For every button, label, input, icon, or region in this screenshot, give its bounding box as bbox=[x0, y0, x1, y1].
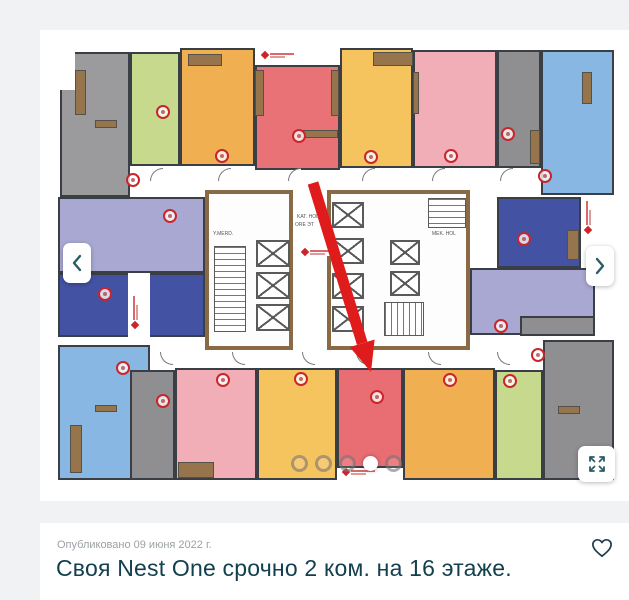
elevator-shaft bbox=[256, 304, 290, 331]
unit-green-bottom bbox=[495, 370, 543, 480]
wall-segment bbox=[413, 72, 419, 114]
unit-number-marker bbox=[163, 209, 177, 223]
unit-number-marker bbox=[494, 319, 508, 333]
wall-segment bbox=[95, 405, 117, 412]
door-arc bbox=[356, 352, 369, 365]
wall-segment bbox=[178, 462, 214, 478]
unit-number-marker bbox=[370, 390, 384, 404]
wall-segment bbox=[530, 130, 540, 164]
unit-number-marker bbox=[501, 127, 515, 141]
unit-number-marker bbox=[156, 394, 170, 408]
gallery-dot[interactable] bbox=[339, 455, 356, 472]
logo-text-lines bbox=[310, 250, 334, 255]
door-arc bbox=[302, 352, 315, 365]
gallery-dots bbox=[291, 455, 402, 472]
logo-diamond-icon bbox=[301, 248, 309, 256]
logo-diamond-icon bbox=[131, 321, 139, 329]
unit-number-marker bbox=[126, 173, 140, 187]
floorplan-image-card: KAT. HOLORE ЭТMEK. HOLY.MERD. bbox=[40, 30, 629, 501]
door-arc bbox=[497, 352, 510, 365]
chevron-right-icon bbox=[594, 257, 606, 275]
elevator-shaft bbox=[390, 271, 420, 296]
gallery-dot[interactable] bbox=[291, 455, 308, 472]
gallery-dot[interactable] bbox=[385, 455, 402, 472]
unit-number-marker bbox=[364, 150, 378, 164]
gallery-next-button[interactable] bbox=[586, 246, 614, 286]
door-arc bbox=[428, 352, 441, 365]
listing-title: Своя Nest One срочно 2 ком. на 16 этаже. bbox=[56, 555, 512, 582]
floorplan-drawing: KAT. HOLORE ЭТMEK. HOLY.MERD. bbox=[40, 30, 629, 501]
wall-segment bbox=[373, 52, 413, 66]
staircase bbox=[214, 246, 246, 332]
gallery-dot-active[interactable] bbox=[363, 456, 378, 471]
favorite-button[interactable] bbox=[589, 536, 615, 563]
plan-label: ORE ЭТ bbox=[295, 223, 314, 229]
elevator-shaft bbox=[332, 238, 364, 264]
unit-number-marker bbox=[294, 372, 308, 386]
unit-number-marker bbox=[517, 232, 531, 246]
plan-label: MEK. HOL bbox=[432, 232, 456, 238]
elevator-shaft bbox=[256, 240, 290, 267]
wall-segment bbox=[582, 72, 592, 104]
unit-number-marker bbox=[444, 149, 458, 163]
wall-segment bbox=[255, 70, 264, 116]
listing-info-card: Опубликовано 09 июня 2022 г. Своя Nest O… bbox=[40, 523, 629, 600]
staircase bbox=[428, 198, 466, 228]
unit-number-marker bbox=[538, 169, 552, 183]
unit-yellow-top bbox=[340, 48, 413, 168]
logo-text-lines bbox=[270, 53, 294, 58]
door-arc bbox=[150, 168, 163, 181]
elevator-shaft bbox=[332, 202, 364, 228]
plan-label: KAT. HOL bbox=[297, 215, 319, 221]
staircase bbox=[384, 302, 424, 336]
unit-number-marker bbox=[215, 149, 229, 163]
wall-segment bbox=[70, 425, 82, 473]
elevator-shaft bbox=[332, 273, 364, 299]
unit-gray-step-right bbox=[520, 316, 595, 336]
gallery-prev-button[interactable] bbox=[63, 243, 91, 283]
wall-segment bbox=[188, 54, 222, 66]
corridor bbox=[58, 48, 75, 90]
unit-number-marker bbox=[443, 373, 457, 387]
unit-green-top bbox=[130, 52, 180, 166]
unit-number-marker bbox=[98, 287, 112, 301]
door-arc bbox=[362, 168, 375, 181]
unit-number-marker bbox=[116, 361, 130, 375]
elevator-shaft bbox=[256, 272, 290, 299]
gallery-dot[interactable] bbox=[315, 455, 332, 472]
logo-text-lines bbox=[586, 201, 591, 225]
elevator-shaft bbox=[332, 306, 364, 332]
elevator-shaft bbox=[390, 240, 420, 265]
fullscreen-button[interactable] bbox=[578, 446, 615, 482]
wall-segment bbox=[331, 70, 339, 116]
wall-segment bbox=[75, 70, 86, 115]
door-arc bbox=[218, 168, 231, 181]
wall-segment bbox=[95, 120, 117, 128]
unit-number-marker bbox=[156, 105, 170, 119]
unit-gray-bottom-left bbox=[130, 370, 175, 480]
published-date: Опубликовано 09 июня 2022 г. bbox=[57, 539, 212, 551]
heart-icon bbox=[591, 538, 613, 558]
door-arc bbox=[500, 168, 513, 181]
unit-number-marker bbox=[531, 348, 545, 362]
unit-number-marker bbox=[292, 129, 306, 143]
logo-diamond-icon bbox=[584, 226, 592, 234]
unit-red-top bbox=[255, 65, 340, 170]
wall-segment bbox=[558, 406, 580, 414]
wall-segment bbox=[567, 230, 579, 260]
developer-logo bbox=[260, 51, 296, 59]
unit-number-marker bbox=[503, 374, 517, 388]
expand-icon bbox=[587, 454, 607, 474]
developer-logo bbox=[300, 248, 336, 256]
chevron-left-icon bbox=[71, 254, 83, 272]
developer-logo bbox=[131, 294, 139, 330]
door-arc bbox=[232, 352, 245, 365]
logo-text-lines bbox=[133, 296, 138, 320]
door-arc bbox=[160, 352, 173, 365]
unit-red-target bbox=[337, 368, 403, 468]
listing-page: KAT. HOLORE ЭТMEK. HOLY.MERD. Опубликова… bbox=[0, 0, 629, 600]
developer-logo bbox=[584, 199, 592, 235]
unit-number-marker bbox=[216, 373, 230, 387]
unit-blue-top-right bbox=[541, 50, 614, 195]
plan-label: Y.MERD. bbox=[213, 232, 233, 238]
door-arc bbox=[432, 168, 445, 181]
logo-diamond-icon bbox=[261, 51, 269, 59]
